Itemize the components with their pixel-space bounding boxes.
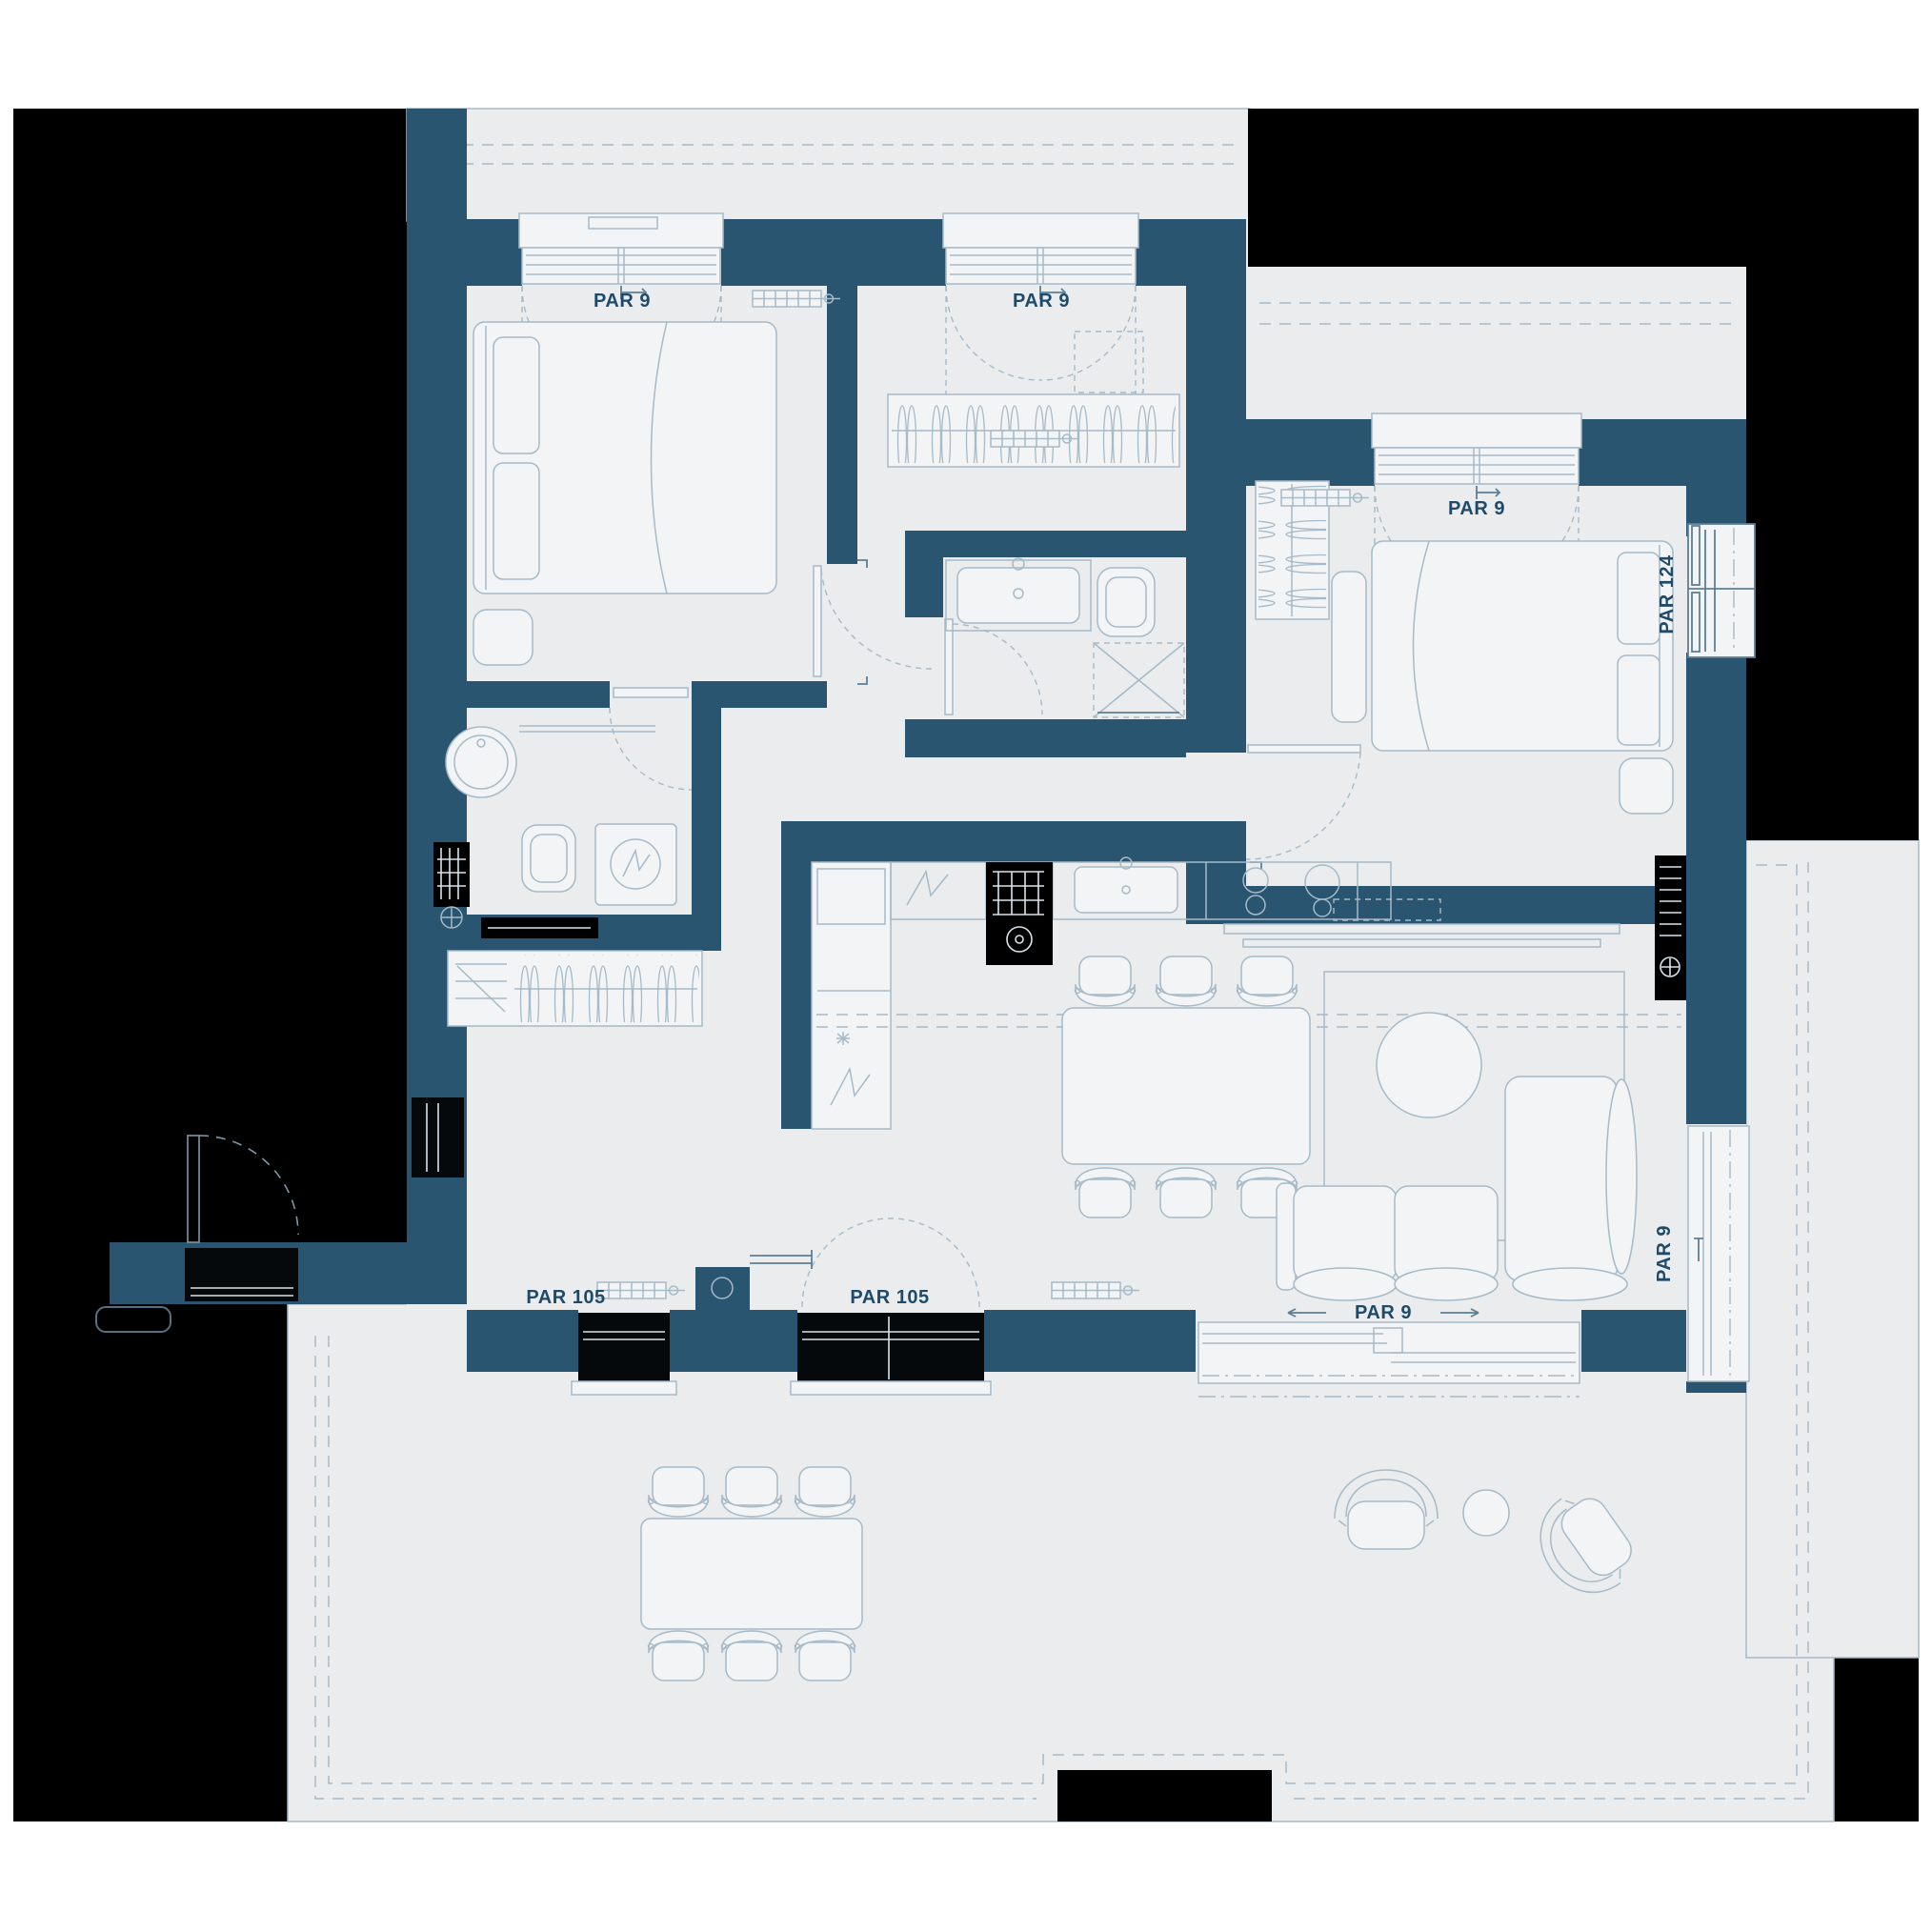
outdoor-side-table <box>1463 1490 1509 1536</box>
outdoor-chair <box>722 1631 782 1680</box>
label-window-top-center: PAR 9 <box>1013 291 1070 312</box>
wall-right-exterior <box>1686 653 1746 1124</box>
coffee-table-round <box>1377 1013 1481 1117</box>
wall-right-exterior <box>1686 1381 1746 1393</box>
kitchen-tall-units <box>812 862 891 1129</box>
label-window-top-left: PAR 9 <box>594 291 651 312</box>
wall-top <box>1136 219 1186 286</box>
pillow <box>1618 655 1660 745</box>
outdoor-chair <box>649 1631 709 1680</box>
wall-bottom <box>670 1310 797 1372</box>
wall-bath2-north <box>905 531 1186 557</box>
wall-bedroom1-south <box>407 681 610 708</box>
freezer-snowflake-icon <box>836 1032 850 1045</box>
nightstand <box>1620 758 1673 814</box>
dining-chair <box>1076 956 1136 1006</box>
label-window-living-bottom: PAR 9 <box>1355 1302 1412 1323</box>
label-window-bedroom-right: PAR 9 <box>1448 498 1505 519</box>
wall-top-right <box>1579 419 1746 486</box>
wall-top <box>467 219 522 286</box>
label-window-right-side: PAR 124 <box>1657 554 1678 634</box>
hall-closet-entry <box>448 951 702 1026</box>
wall-step-vertical <box>1186 219 1246 486</box>
wall-bath2-west <box>905 557 943 617</box>
window-entry-side <box>412 1097 464 1177</box>
window-par124-right <box>1688 524 1755 657</box>
dining-chair <box>1076 1168 1136 1218</box>
window-par9-living-side <box>1688 1126 1749 1381</box>
terrace-top-floor <box>407 109 1250 221</box>
outdoor-chair <box>795 1467 855 1517</box>
wall-bottom <box>984 1310 1196 1372</box>
wall-bedroom1-south <box>692 681 827 708</box>
wall-kitchen-west <box>781 821 812 1129</box>
outdoor-dining-table <box>641 1519 862 1629</box>
outdoor-chair <box>649 1467 709 1517</box>
label-window-hall-bottom-center: PAR 105 <box>850 1287 929 1308</box>
pillow <box>1618 553 1660 644</box>
pillow <box>493 337 539 453</box>
wall-kitchen-north <box>781 821 1246 862</box>
dining-chair <box>1157 956 1217 1006</box>
washing-machine <box>595 824 676 905</box>
dining-chair <box>1157 1168 1217 1218</box>
wall-left-exterior <box>407 109 467 1242</box>
label-window-hall-bottom-left: PAR 105 <box>526 1287 605 1308</box>
radiator-niche-bath1 <box>433 842 470 907</box>
wall-bath2-south <box>905 719 1186 757</box>
wall-top <box>721 219 946 286</box>
washbasin-2 <box>957 568 1079 623</box>
wall-bedroom1-east <box>827 286 857 564</box>
exterior-notch-bottom <box>1057 1770 1272 1821</box>
radiator-niche-living <box>1655 855 1686 1000</box>
bedroom2-bench <box>1332 572 1366 722</box>
wall-bottom <box>467 1310 578 1372</box>
outdoor-chair <box>795 1631 855 1680</box>
wall-top-right <box>1246 419 1375 486</box>
nightstand <box>473 610 533 665</box>
window-par105-left <box>572 1313 676 1395</box>
dining-table <box>1062 1008 1310 1164</box>
terrace-right-floor <box>1746 840 1919 1658</box>
pillow <box>493 463 539 579</box>
floor-plan-drawing: PAR 9 PAR 9 PAR 9 PAR 124 PAR 9 PAR 9 PA… <box>0 0 1932 1932</box>
exterior-notch-right <box>1746 267 1919 840</box>
wall-living-north <box>1186 886 1655 924</box>
wall-bedroom2-west <box>1186 486 1246 753</box>
floor-plan-page: PAR 9 PAR 9 PAR 9 PAR 124 PAR 9 PAR 9 PA… <box>0 0 1932 1932</box>
outdoor-chair <box>722 1467 782 1517</box>
label-window-living-side: PAR 9 <box>1654 1225 1675 1282</box>
wall-bottom <box>1581 1310 1686 1372</box>
wall-bath1-east <box>692 708 721 951</box>
exterior-notch-top-right <box>1248 109 1919 267</box>
wall-bedroom2-west <box>1186 859 1246 886</box>
kitchen-sink <box>1075 867 1177 913</box>
washbasin-round <box>446 727 516 797</box>
dining-chair <box>1238 956 1298 1006</box>
kitchen-black-unit <box>986 862 1053 965</box>
wall-pillar <box>695 1267 750 1310</box>
